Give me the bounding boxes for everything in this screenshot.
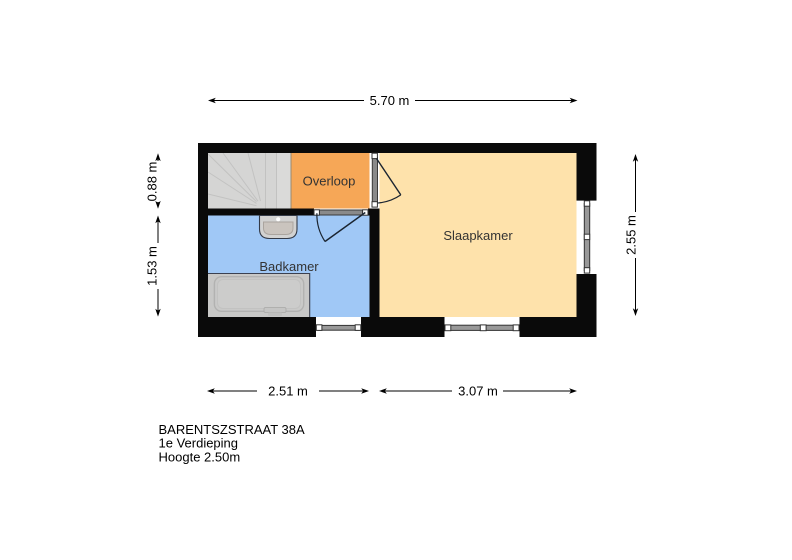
svg-text:0.88 m: 0.88 m (145, 162, 160, 202)
svg-text:Badkamer: Badkamer (259, 259, 319, 274)
svg-text:2.51 m: 2.51 m (268, 384, 308, 399)
svg-text:2.55 m: 2.55 m (624, 215, 639, 255)
svg-text:1.53 m: 1.53 m (145, 246, 160, 286)
svg-text:Overloop: Overloop (303, 174, 356, 189)
svg-text:3.07 m: 3.07 m (458, 384, 498, 399)
svg-text:Slaapkamer: Slaapkamer (443, 228, 513, 243)
svg-text:Hoogte 2.50m: Hoogte 2.50m (159, 449, 241, 464)
svg-text:5.70 m: 5.70 m (370, 93, 410, 108)
